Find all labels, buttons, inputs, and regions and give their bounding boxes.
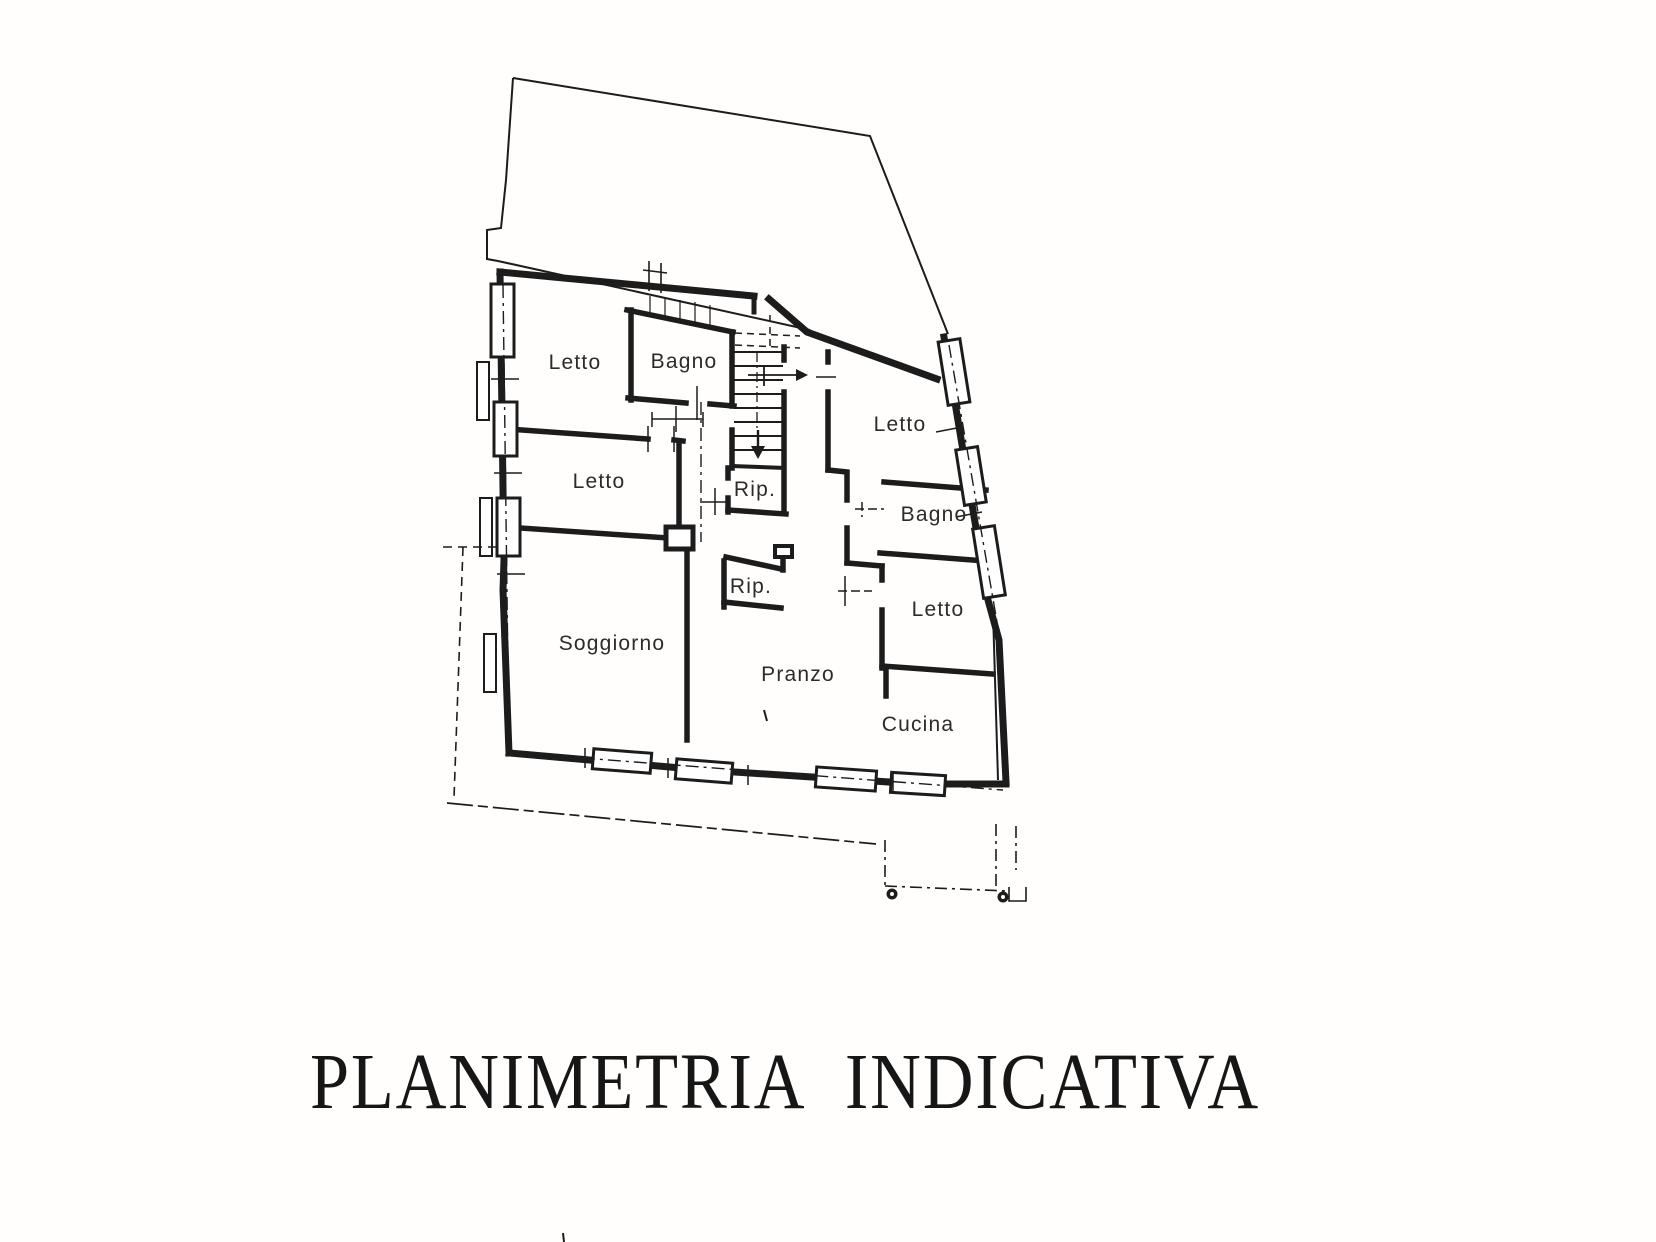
room-label-bagno-2: Bagno (901, 503, 968, 526)
stair-down-arrow-icon (751, 446, 765, 459)
balcony-step-bracket (1009, 887, 1026, 901)
room-label-bagno-1: Bagno (651, 350, 718, 373)
room-label-soggiorno: Soggiorno (559, 632, 666, 655)
room-label-letto-1: Letto (549, 351, 602, 374)
plan-title: PLANIMETRIA INDICATIVA (310, 1039, 1260, 1126)
balcony-outline-right (885, 824, 1016, 891)
floor-plan: Letto Bagno Letto Rip. Letto Bagno Rip. … (0, 0, 1656, 1242)
scanned-floor-plan-page: Letto Bagno Letto Rip. Letto Bagno Rip. … (0, 0, 1656, 1242)
staircase (732, 315, 800, 468)
room-label-rip-1: Rip. (734, 478, 776, 501)
stray-marks (563, 710, 767, 1242)
room-label-letto-2: Letto (573, 470, 626, 493)
exterior-walls (500, 272, 1006, 784)
room-label-letto-3: Letto (874, 413, 927, 436)
entrance-arrow-icon (748, 365, 808, 386)
room-label-rip-2: Rip. (730, 575, 772, 598)
room-label-pranzo: Pranzo (761, 663, 835, 686)
room-label-letto-4: Letto (912, 598, 965, 621)
lower-boundary-line (447, 803, 876, 844)
room-label-cucina: Cucina (882, 713, 955, 736)
